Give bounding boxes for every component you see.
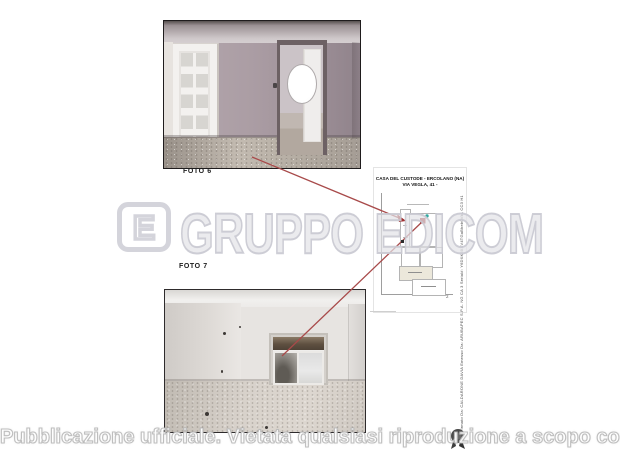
photo-foto6 — [163, 20, 361, 169]
photo7-window-transom — [273, 337, 325, 352]
plan-title: CASA DEL CUSTODE - ERCOLANO (NA) VIA VEG… — [374, 176, 466, 188]
plan-room-a — [409, 213, 437, 247]
plan-corner-mark: 2 — [446, 294, 449, 299]
watermark-text: GRUPPO EDICOM — [180, 201, 543, 267]
document-page: FOTO 6 FOTO 7 CASA DEL CUSTODE - ERCOLAN… — [0, 0, 620, 450]
photo7-window-right-pane — [297, 351, 324, 385]
photo7-wall-speck — [239, 326, 241, 328]
photo7-floor — [165, 381, 365, 432]
edicom-logo-letter: E — [133, 211, 155, 244]
photo6-privacy-oval — [287, 64, 317, 104]
photo6-right-corner — [352, 42, 360, 139]
rosette-ribbon-icon — [449, 428, 467, 450]
plan-street-label — [407, 204, 429, 205]
photo6-floor — [164, 137, 360, 168]
photo7-wall-speck — [221, 370, 223, 373]
photo7-baseline — [165, 379, 365, 381]
photo6-light-switch — [273, 83, 277, 87]
photo6-caption: FOTO 6 — [183, 168, 212, 175]
photo7-caption: FOTO 7 — [179, 263, 208, 270]
plan-tiny-label — [403, 237, 408, 238]
photo7-window — [269, 333, 328, 385]
edicom-logo-icon: E — [117, 202, 171, 252]
signature-vertical-text: Firmato Da: CALDARONE DAVIA Emesso Da: A… — [459, 176, 468, 432]
plan-room-terrace — [412, 279, 446, 296]
plan-room-c — [420, 247, 443, 268]
photo-foto7 — [164, 289, 366, 433]
photo7-wall-speck — [223, 332, 226, 335]
plan-tiny-label — [403, 225, 407, 226]
plan-steps-line — [370, 311, 396, 312]
plan-room-b — [401, 247, 420, 268]
photo6-baseline — [164, 135, 360, 138]
photo7-window-left-pane — [273, 351, 301, 385]
floor-plan: CASA DEL CUSTODE - ERCOLANO (NA) VIA VEG… — [373, 167, 467, 313]
plan-title-line2: VIA VEGLA, 41 - — [374, 182, 466, 188]
plan-outer-wall-left — [381, 193, 382, 294]
